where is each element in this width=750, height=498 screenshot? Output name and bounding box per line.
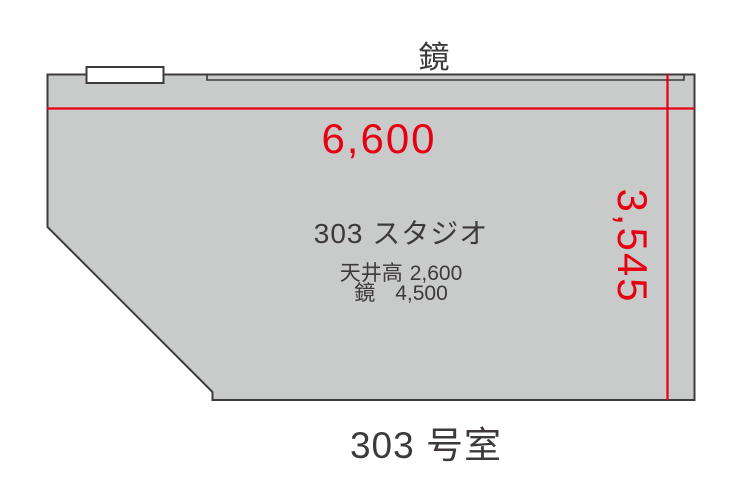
floor-plan-page: 鏡 6,600 3,545 303 スタジオ 天井高2,600 鏡4,500 3… [0, 0, 750, 498]
room-caption: 303 号室 [350, 425, 502, 466]
mirror-length-spec-value: 4,500 [395, 282, 448, 305]
floor-plan-canvas: 鏡 6,600 3,545 303 スタジオ 天井高2,600 鏡4,500 3… [0, 0, 750, 498]
mirror-length-spec-label: 鏡 [354, 282, 375, 305]
door-opening [87, 67, 164, 83]
width-dimension-label: 6,600 [321, 115, 436, 162]
room-name-label: 303 スタジオ [314, 218, 489, 249]
mirror-label: 鏡 [419, 40, 450, 75]
mirror-length-spec: 鏡4,500 [354, 282, 448, 305]
depth-dimension-label: 3,545 [609, 188, 656, 303]
